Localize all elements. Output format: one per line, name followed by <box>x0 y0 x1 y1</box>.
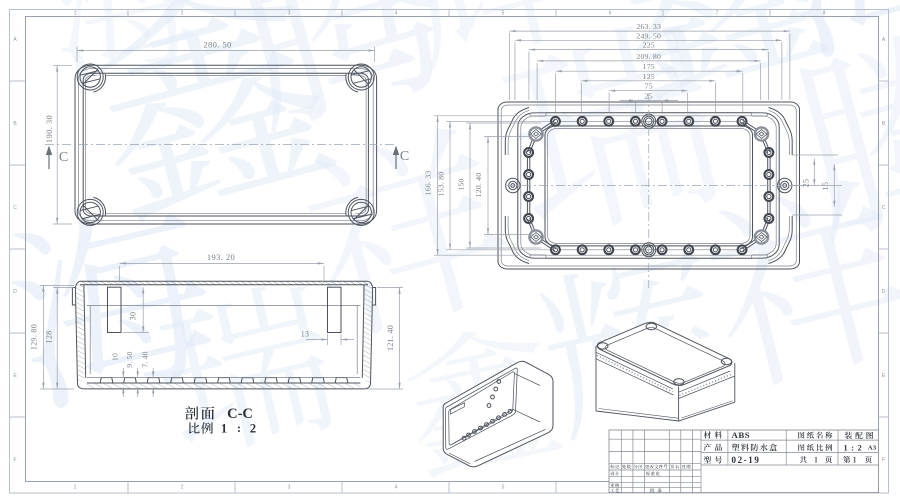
svg-text:C: C <box>13 205 17 211</box>
svg-text:D: D <box>882 289 886 295</box>
svg-text:150: 150 <box>456 178 465 190</box>
svg-text:1: 1 <box>74 11 77 17</box>
svg-text:6: 6 <box>609 11 612 17</box>
svg-text:2: 2 <box>181 11 184 17</box>
svg-text:120. 40: 120. 40 <box>474 173 483 198</box>
svg-text:4: 4 <box>395 485 398 491</box>
svg-text:166. 33: 166. 33 <box>424 171 433 196</box>
svg-text:175: 175 <box>643 62 655 71</box>
svg-text:128: 128 <box>45 331 54 344</box>
svg-text:D: D <box>13 289 17 295</box>
svg-text:02-19: 02-19 <box>732 455 761 465</box>
svg-text:190. 30: 190. 30 <box>44 115 54 143</box>
svg-text:125: 125 <box>643 72 655 81</box>
svg-text:15: 15 <box>821 182 830 191</box>
svg-text:280. 50: 280. 50 <box>203 40 231 50</box>
svg-text:C-C: C-C <box>227 406 253 422</box>
svg-text:75: 75 <box>645 82 653 91</box>
svg-text:F: F <box>13 457 16 463</box>
svg-text:153. 80: 153. 80 <box>436 172 445 197</box>
svg-text:30: 30 <box>129 312 138 321</box>
svg-text:ABS: ABS <box>732 430 751 440</box>
svg-text:9. 50: 9. 50 <box>125 351 134 367</box>
svg-text:25: 25 <box>801 179 810 188</box>
svg-text:1: 1 <box>74 485 77 491</box>
svg-text:8: 8 <box>823 11 826 17</box>
svg-text:263. 33: 263. 33 <box>636 22 661 31</box>
svg-text:5: 5 <box>502 11 505 17</box>
svg-text:7. 40: 7. 40 <box>140 351 149 367</box>
svg-text:193. 20: 193. 20 <box>207 252 235 262</box>
svg-text:C: C <box>882 205 886 211</box>
svg-text:225: 225 <box>643 41 655 50</box>
svg-text:249. 50: 249. 50 <box>636 31 661 40</box>
svg-text:25: 25 <box>645 91 653 100</box>
svg-text:C: C <box>400 149 409 164</box>
svg-text::: : <box>237 421 241 435</box>
svg-text:C: C <box>59 150 68 165</box>
svg-text:10: 10 <box>111 353 120 361</box>
svg-text:3: 3 <box>288 485 291 491</box>
svg-text:1: 1 <box>221 421 227 435</box>
svg-text:2: 2 <box>181 485 184 491</box>
svg-text:209. 80: 209. 80 <box>636 52 661 61</box>
svg-text:7: 7 <box>716 11 719 17</box>
svg-text:121. 40: 121. 40 <box>386 325 395 351</box>
svg-text:1 : 2: 1 : 2 <box>844 444 863 453</box>
svg-text:3: 3 <box>288 11 291 17</box>
svg-text:2: 2 <box>250 421 256 435</box>
svg-text:13: 13 <box>301 330 310 339</box>
svg-text:4: 4 <box>395 11 398 17</box>
svg-text:129. 80: 129. 80 <box>30 324 39 350</box>
svg-text:5: 5 <box>502 485 505 491</box>
svg-text:A3: A3 <box>868 444 877 451</box>
svg-text:F: F <box>882 457 885 463</box>
